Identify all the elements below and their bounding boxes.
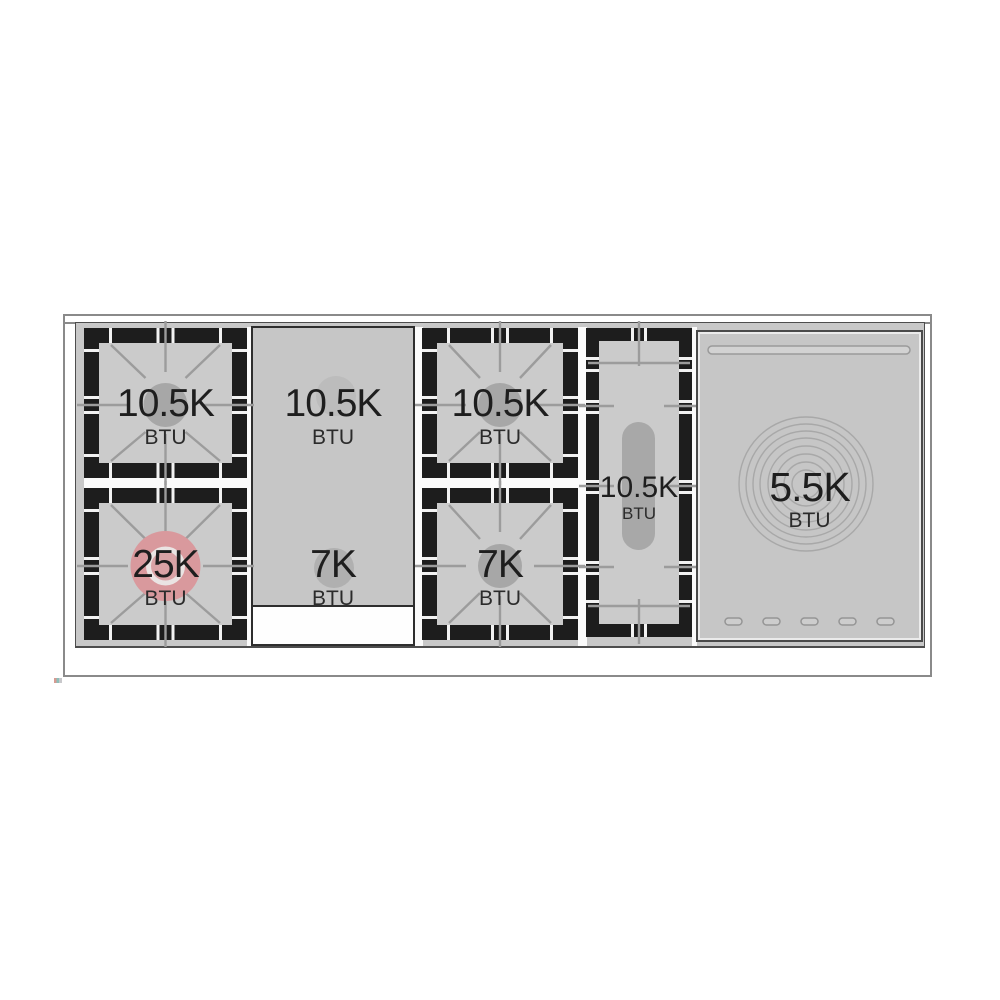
grate-icon	[422, 488, 578, 640]
simmer-rings-icon	[739, 417, 873, 551]
oval-burner-icon	[622, 422, 655, 550]
watermark-artifact	[54, 678, 62, 683]
simmer-plate-panel	[696, 330, 923, 642]
griddle-rear-burner-icon	[316, 376, 356, 416]
oval-burner-grate-icon	[586, 328, 692, 637]
burner-grate-center-front	[422, 488, 578, 640]
oval-burner-frame	[586, 328, 692, 637]
burner-grate-left-rear	[84, 328, 247, 478]
grate-icon	[422, 328, 578, 478]
cooktop-spec-diagram: 10.5K BTU 25K BTU 10.5K BTU 7K BTU 10.5K…	[0, 0, 1000, 1000]
grate-icon	[84, 488, 247, 640]
simmer-plate-graphics	[698, 332, 921, 640]
burner-grate-center-rear	[422, 328, 578, 478]
grate-icon	[84, 328, 247, 478]
griddle-front-tray	[251, 605, 415, 646]
vent-slots-icon	[725, 618, 894, 625]
burner-grate-left-front	[84, 488, 247, 640]
handle-slot-icon	[708, 346, 910, 354]
griddle-front-burner-icon	[314, 548, 354, 588]
